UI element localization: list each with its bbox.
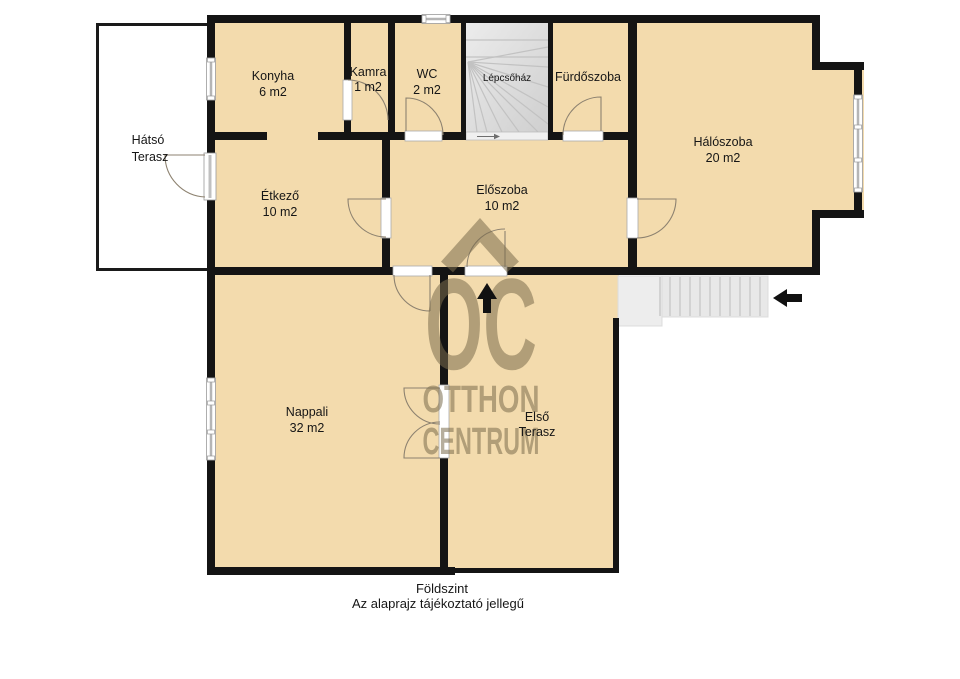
wall-stairs-bath <box>548 23 553 140</box>
wall-outer-top <box>207 15 818 23</box>
label-bathroom: Fürdőszoba <box>555 70 621 84</box>
wall-front-terrace-right <box>613 318 619 573</box>
bedroom-bay-window <box>854 95 863 192</box>
living-room-window <box>207 378 216 460</box>
label-dining-area: 10 m2 <box>263 205 298 219</box>
wall-dining-hall-lower <box>382 238 390 267</box>
kitchen-window <box>207 58 216 100</box>
label-pantry-area: 1 m2 <box>354 80 382 94</box>
wall-south-3 <box>507 267 818 275</box>
label-staircase: Lépcsőház <box>483 73 531 84</box>
label-kitchen-area: 6 m2 <box>259 85 287 99</box>
wall-kitchen-pantry-lower <box>344 120 351 132</box>
back-terrace-floor <box>96 23 210 271</box>
wall-bay-right-upper <box>854 62 862 95</box>
label-wc: WC <box>417 67 438 81</box>
label-back-terrace-2: Terasz <box>132 150 169 164</box>
bedroom-door-opening <box>627 198 638 238</box>
terrace-door-opening <box>204 153 216 200</box>
wc-door-opening <box>405 131 442 141</box>
wall-mid-5 <box>603 132 637 140</box>
living-room-floor <box>207 275 455 575</box>
floor-plan-svg: OC OTTHON CENTRUM Konyha 6 m2 Kamra 1 m2… <box>0 0 960 679</box>
wall-south-1 <box>207 267 393 275</box>
bath-door-opening <box>563 131 603 141</box>
wall-bath-bedroom-upper <box>628 15 637 198</box>
watermark-logo: OC <box>425 251 537 397</box>
wall-bedroom-right-lower <box>812 210 820 275</box>
wall-mid-3 <box>442 132 466 140</box>
wall-mid-4 <box>552 132 563 140</box>
wall-living-east-lower <box>440 458 448 567</box>
wall-pantry-wc <box>388 23 395 140</box>
label-living-area: 32 m2 <box>290 421 325 435</box>
label-pantry: Kamra <box>350 65 387 79</box>
footer: Földszint Az alaprajz tájékoztató jelleg… <box>352 581 524 611</box>
back-terrace <box>96 23 215 271</box>
back-terrace-border-bottom <box>96 268 215 271</box>
wall-dining-hall-upper <box>382 140 390 198</box>
label-hall-area: 10 m2 <box>485 199 520 213</box>
label-bedroom-area: 20 m2 <box>706 151 741 165</box>
label-dining: Étkező <box>261 188 299 203</box>
label-living: Nappali <box>286 405 328 419</box>
wall-front-terrace-bottom <box>447 568 619 573</box>
outdoor-stairs-arrow-icon <box>773 289 802 307</box>
wall-mid-2 <box>318 132 405 140</box>
wall-bedroom-right-upper <box>812 15 820 70</box>
footer-floor-name: Földszint <box>416 581 468 596</box>
floor-plan-page: OC OTTHON CENTRUM Konyha 6 m2 Kamra 1 m2… <box>0 0 960 679</box>
label-kitchen: Konyha <box>252 69 294 83</box>
wall-bath-bedroom-lower <box>628 238 637 275</box>
wall-living-bottom <box>207 567 455 575</box>
wc-top-window <box>422 15 450 24</box>
label-front-terrace-1: Első <box>525 410 549 424</box>
dining-door-opening <box>381 198 391 238</box>
footer-disclaimer: Az alaprajz tájékoztató jellegű <box>352 596 524 611</box>
label-wc-area: 2 m2 <box>413 83 441 97</box>
outdoor-stairs <box>618 276 768 326</box>
wall-mid-1 <box>207 132 267 140</box>
back-terrace-border-top <box>96 23 207 26</box>
wall-wc-stairs <box>461 23 466 140</box>
label-front-terrace-2: Terasz <box>519 425 556 439</box>
outdoor-stairs-landing <box>618 276 662 326</box>
pantry-door-opening <box>343 80 352 120</box>
back-terrace-border-left <box>96 23 99 271</box>
label-back-terrace-1: Hátsó <box>132 133 165 147</box>
label-bedroom: Hálószoba <box>693 135 752 149</box>
label-hall: Előszoba <box>476 183 527 197</box>
watermark-line1: OTTHON <box>423 379 540 421</box>
